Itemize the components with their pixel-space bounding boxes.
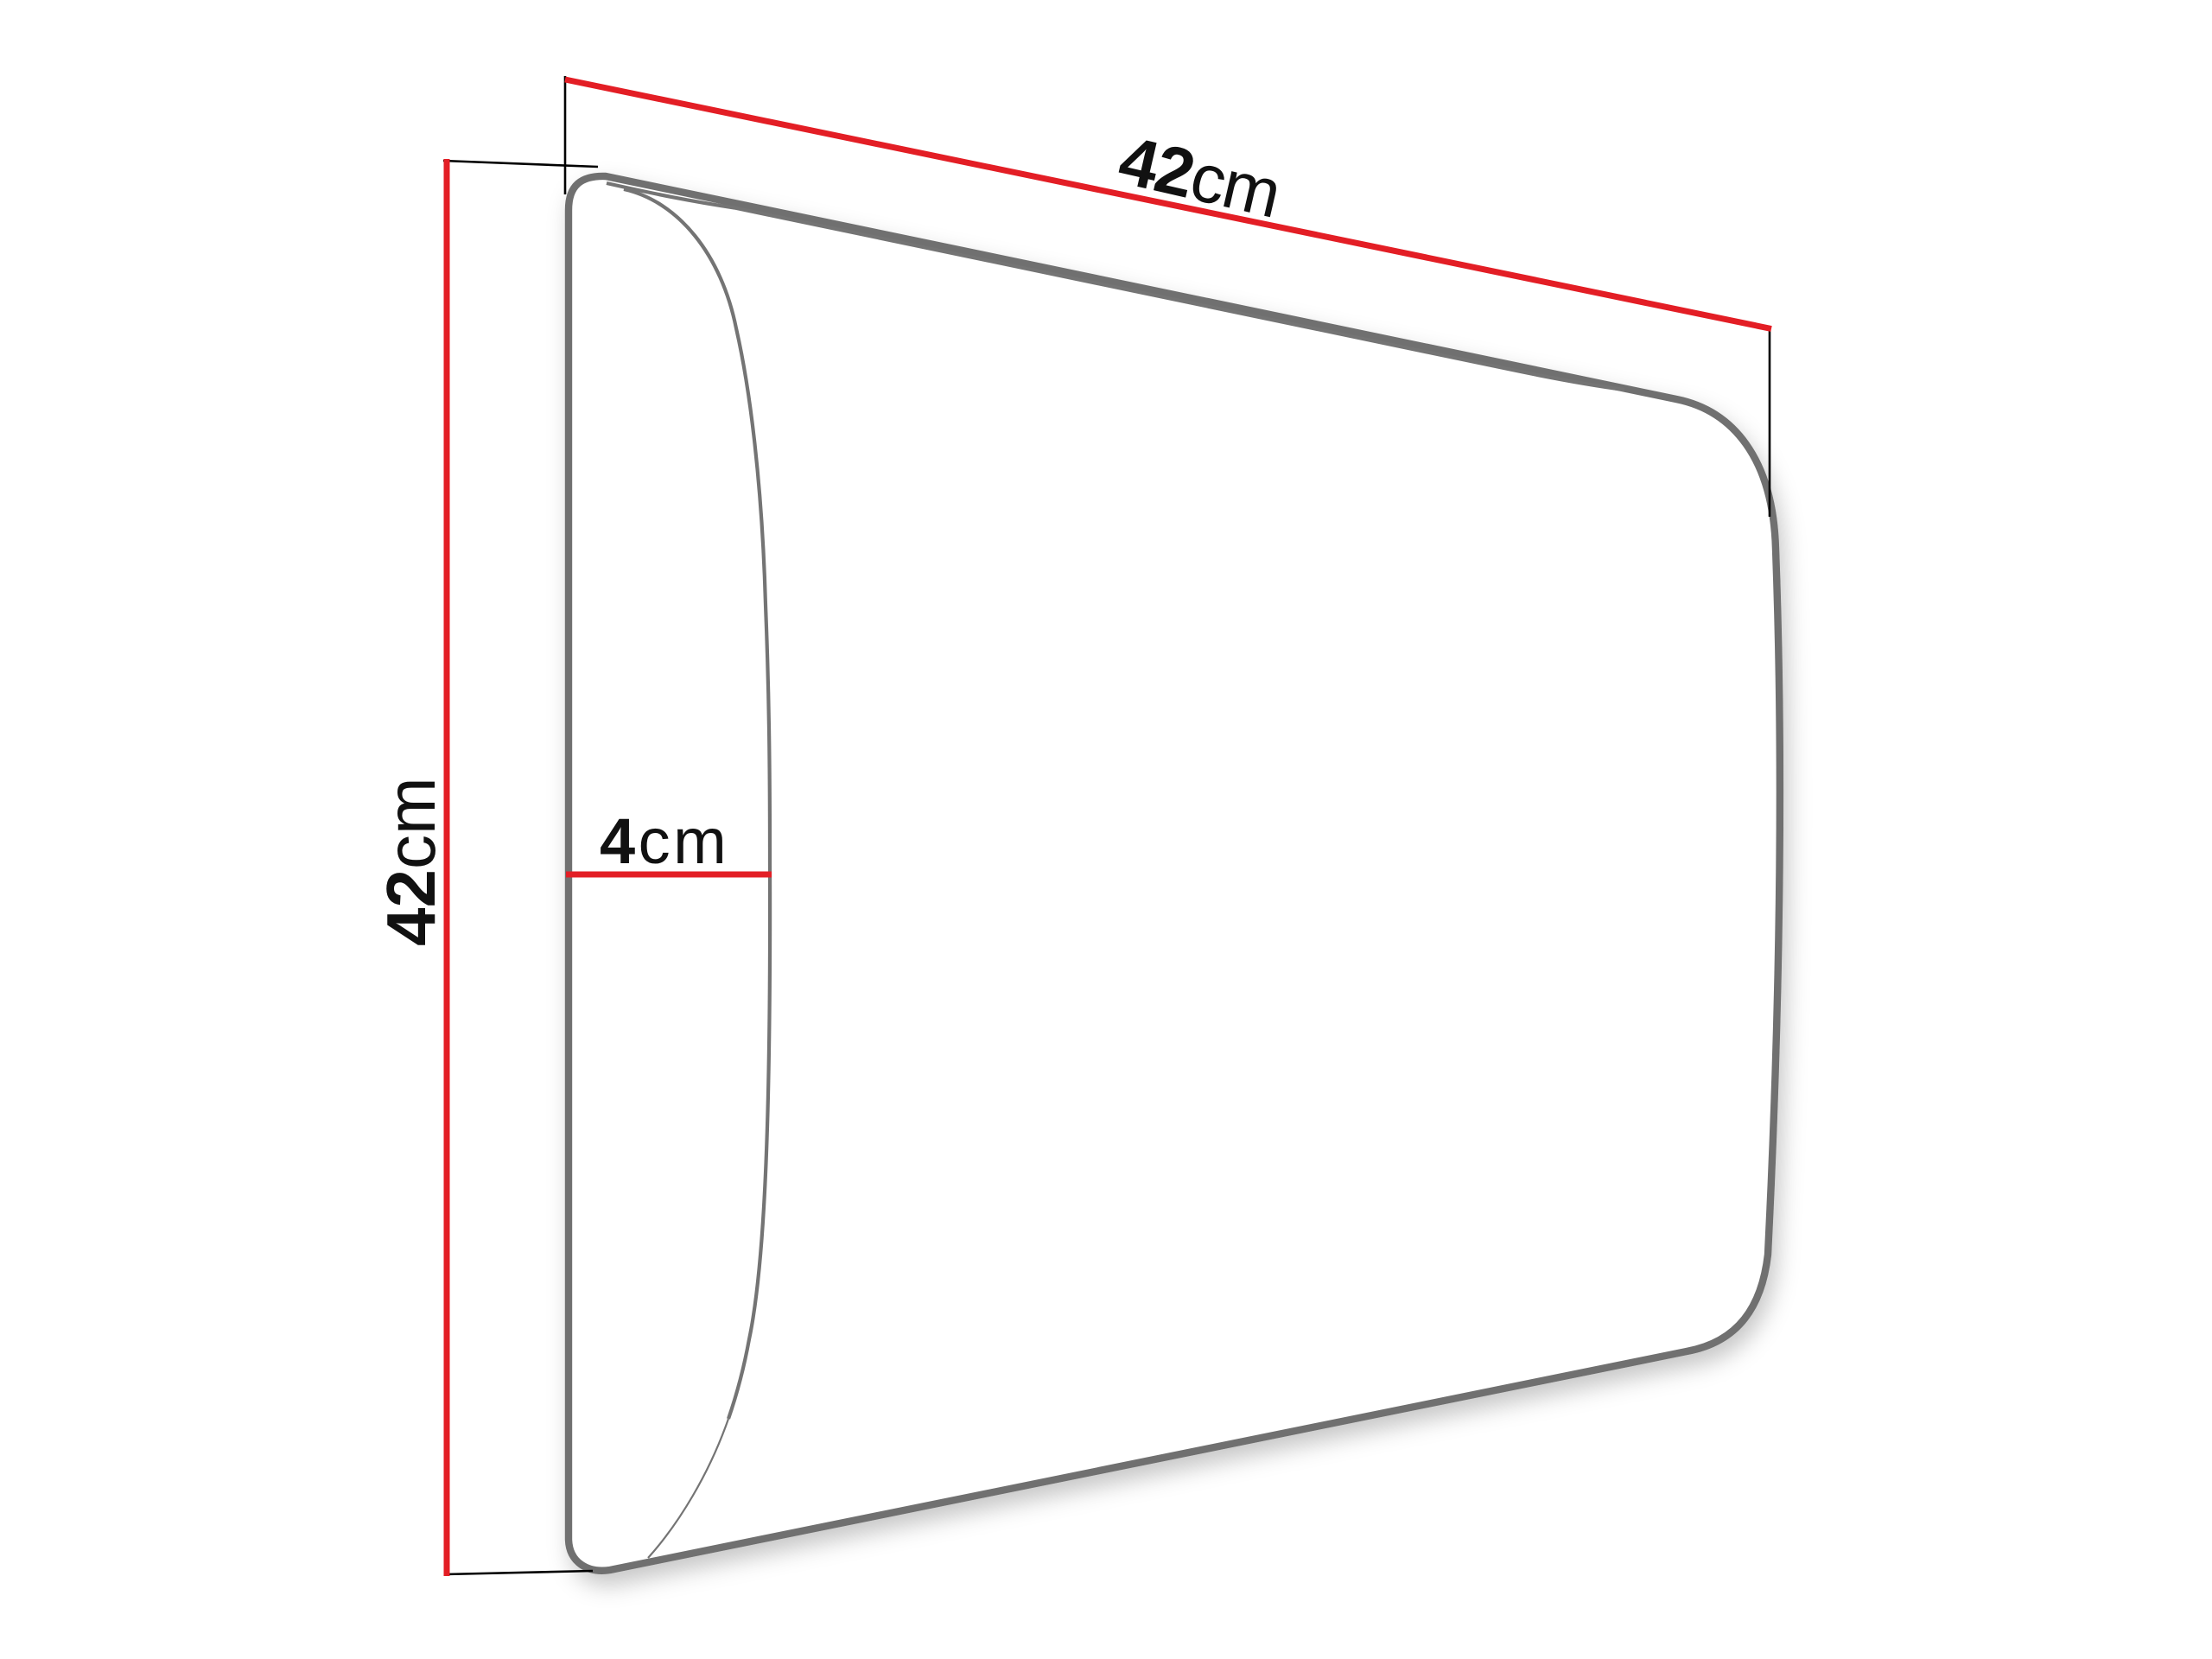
svg-text:4cm: 4cm xyxy=(600,805,729,877)
svg-text:42cm: 42cm xyxy=(372,777,449,946)
svg-text:42cm: 42cm xyxy=(1112,121,1287,232)
